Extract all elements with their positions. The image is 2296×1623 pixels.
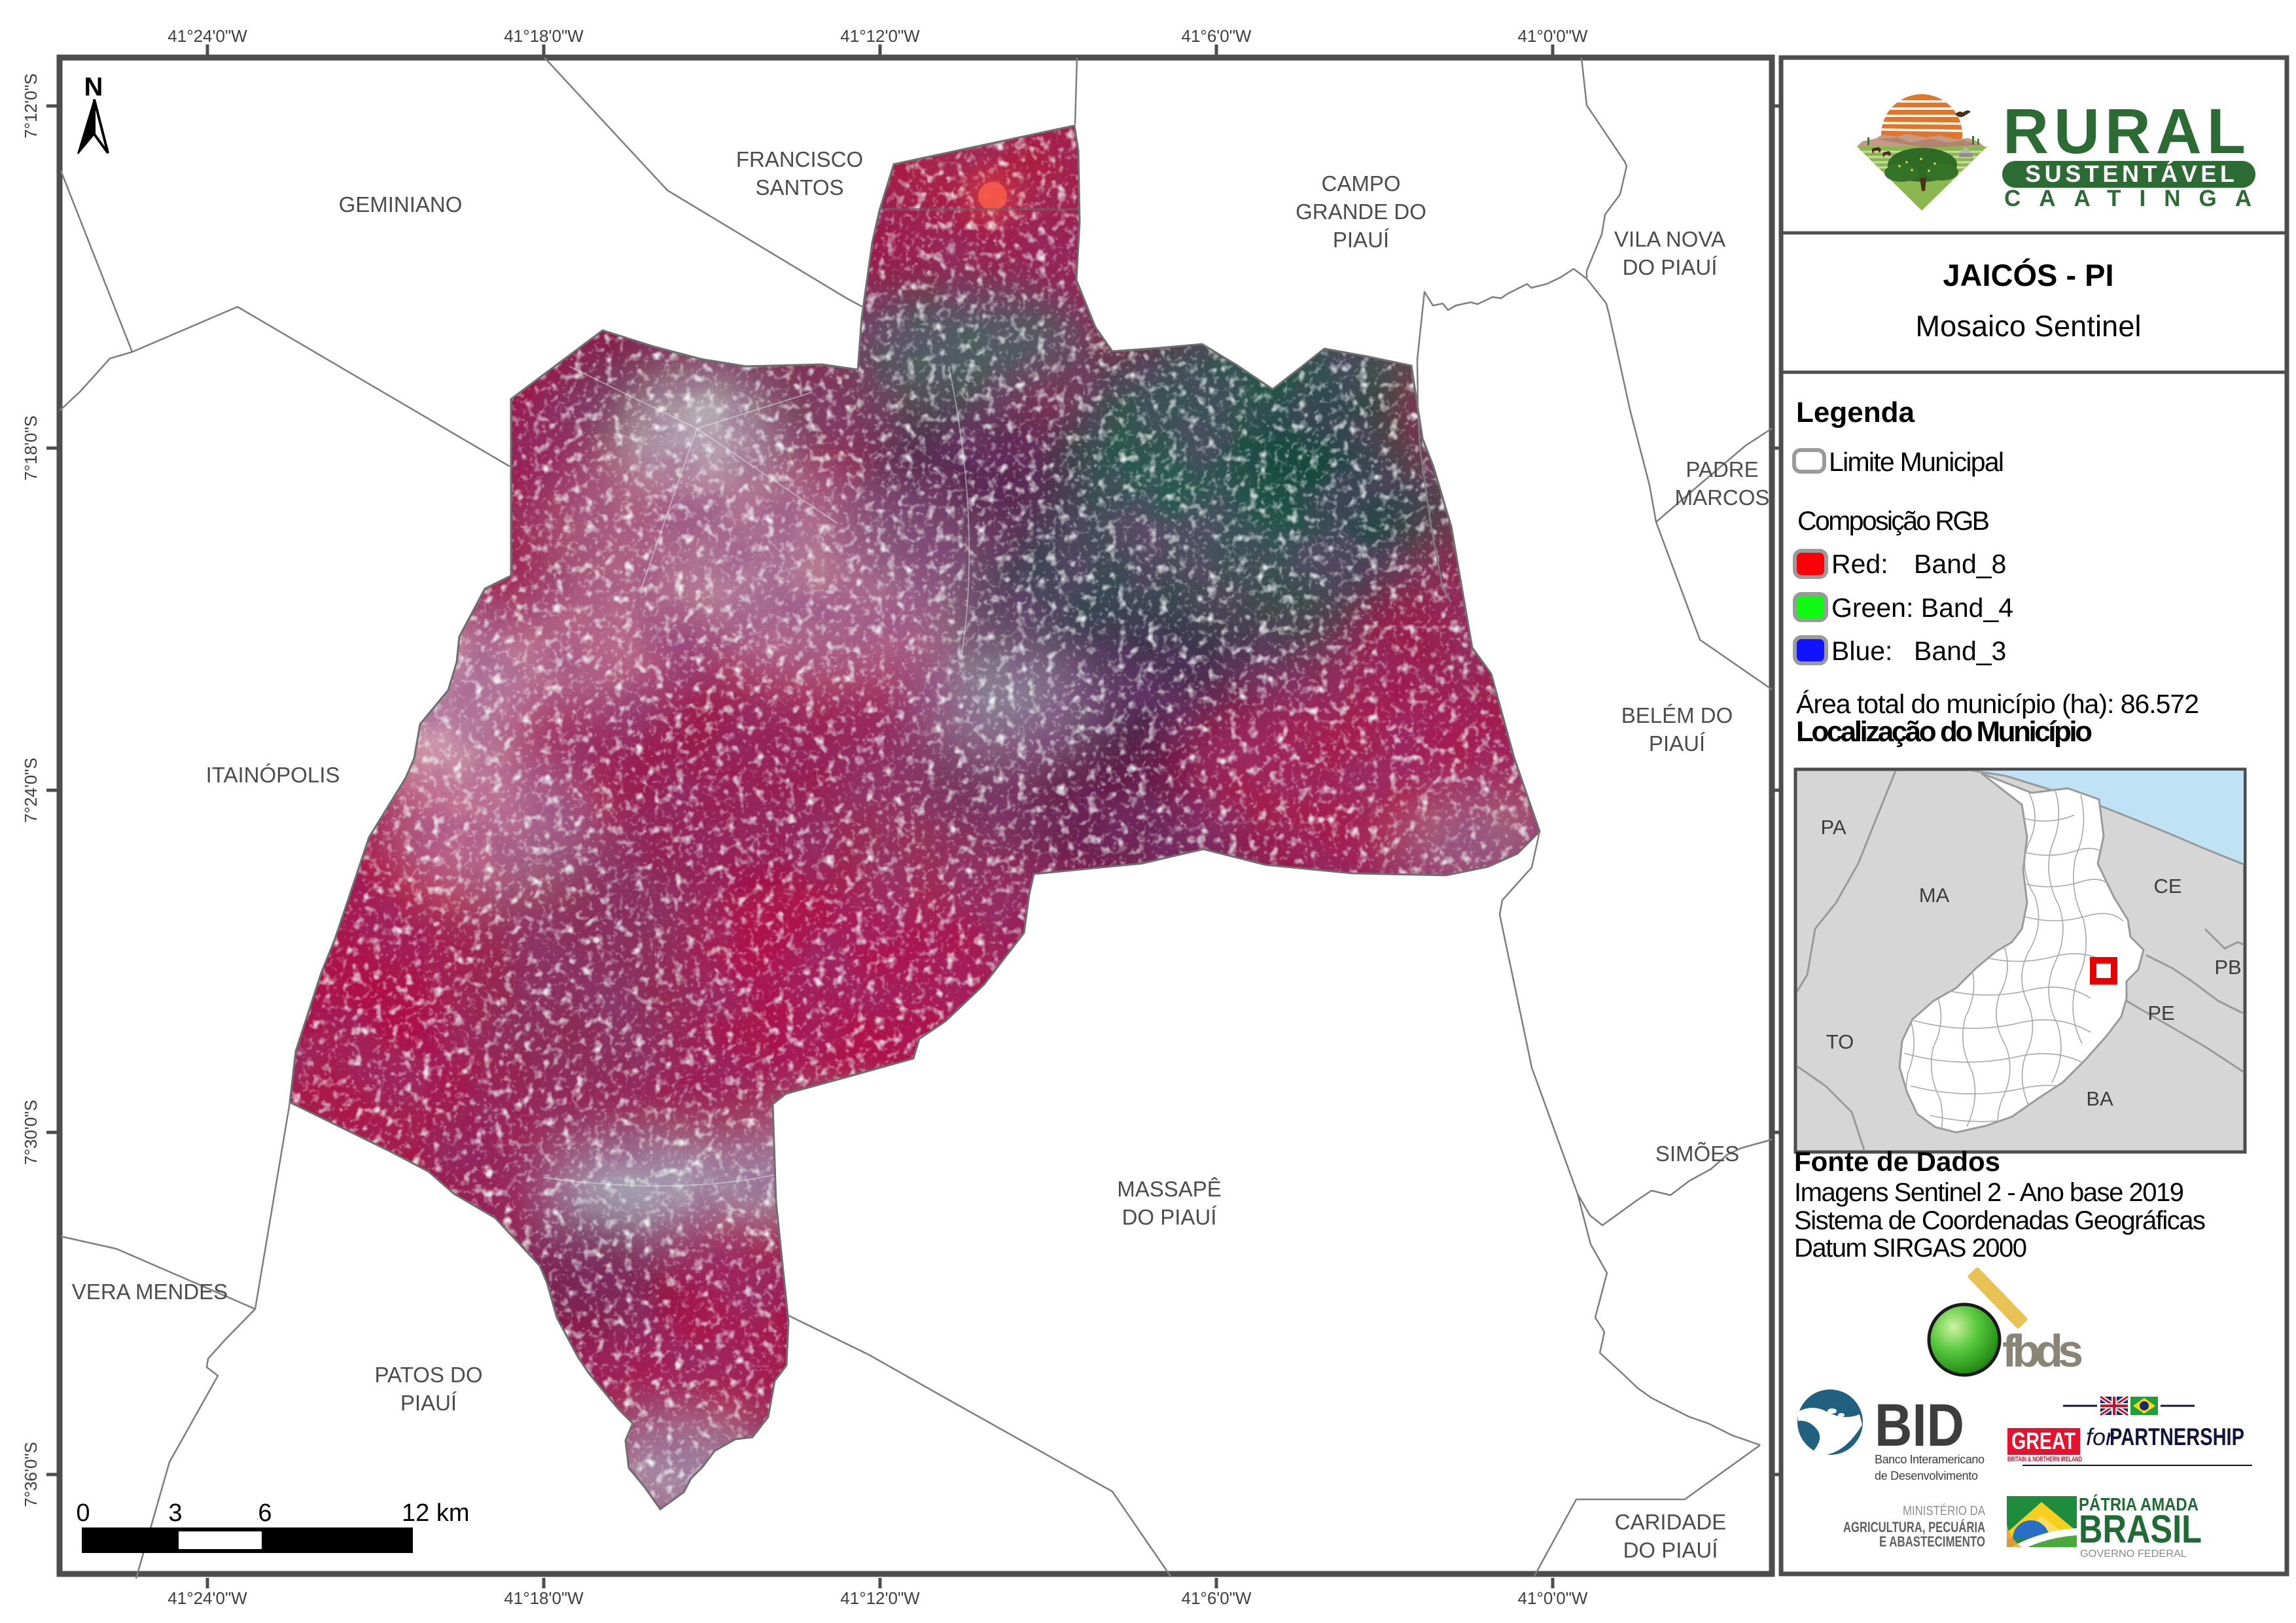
svg-text:Green: Band_4: Green: Band_4 xyxy=(1831,593,2013,623)
svg-text:BA: BA xyxy=(2086,1087,2113,1110)
svg-text:VILA NOVA: VILA NOVA xyxy=(1614,227,1725,251)
svg-text:VERA MENDES: VERA MENDES xyxy=(72,1280,228,1304)
svg-text:Red:: Red: xyxy=(1831,549,1888,579)
svg-text:41°24'0"W: 41°24'0"W xyxy=(168,1588,247,1608)
svg-text:7°18'0"S: 7°18'0"S xyxy=(21,415,41,481)
svg-text:PADRE: PADRE xyxy=(1686,457,1758,481)
svg-text:Composição RGB: Composição RGB xyxy=(1797,506,1990,536)
svg-text:Mosaico Sentinel: Mosaico Sentinel xyxy=(1916,309,2142,343)
svg-text:FRANCISCO: FRANCISCO xyxy=(736,147,863,171)
svg-text:PE: PE xyxy=(2147,1002,2174,1024)
svg-text:Limite Municipal: Limite Municipal xyxy=(1829,447,2004,477)
svg-text:Legenda: Legenda xyxy=(1796,396,1915,428)
svg-text:de Desenvolvimento: de Desenvolvimento xyxy=(1875,1469,1978,1482)
svg-text:GOVERNO FEDERAL: GOVERNO FEDERAL xyxy=(2080,1548,2187,1560)
svg-text:RURAL: RURAL xyxy=(2003,96,2246,167)
svg-text:PB: PB xyxy=(2214,956,2241,979)
svg-text:SUSTENTÁVEL: SUSTENTÁVEL xyxy=(2025,160,2234,187)
svg-text:BRITAIN & NORTHERN IRELAND: BRITAIN & NORTHERN IRELAND xyxy=(2007,1456,2082,1463)
svg-text:Fonte de Dados: Fonte de Dados xyxy=(1794,1146,2000,1177)
svg-text:BELÉM DO: BELÉM DO xyxy=(1621,703,1733,727)
svg-text:41°0'0"W: 41°0'0"W xyxy=(1518,26,1588,46)
svg-text:BRASIL: BRASIL xyxy=(2079,1507,2202,1551)
svg-text:Sistema de Coordenadas Geográf: Sistema de Coordenadas Geográficas xyxy=(1794,1206,2206,1235)
svg-text:CE: CE xyxy=(2153,875,2181,898)
svg-text:7°24'0"S: 7°24'0"S xyxy=(21,758,41,823)
svg-text:PA: PA xyxy=(1820,816,1846,839)
svg-text:Blue:: Blue: xyxy=(1831,636,1892,666)
svg-text:41°24'0"W: 41°24'0"W xyxy=(168,26,247,46)
svg-text:41°6'0"W: 41°6'0"W xyxy=(1182,1588,1252,1608)
svg-text:41°18'0"W: 41°18'0"W xyxy=(504,1588,584,1608)
svg-text:SANTOS: SANTOS xyxy=(755,175,843,200)
svg-text:MINISTÉRIO DA: MINISTÉRIO DA xyxy=(1903,1503,1986,1518)
svg-text:7°36'0"S: 7°36'0"S xyxy=(21,1442,41,1507)
svg-text:PIAUÍ: PIAUÍ xyxy=(400,1391,457,1415)
svg-text:Band_8: Band_8 xyxy=(1914,549,2006,579)
svg-text:Banco Interamericano: Banco Interamericano xyxy=(1875,1453,1985,1466)
svg-text:7°30'0"S: 7°30'0"S xyxy=(21,1100,41,1165)
svg-text:CARIDADE: CARIDADE xyxy=(1615,1510,1727,1534)
svg-text:41°18'0"W: 41°18'0"W xyxy=(504,26,584,46)
svg-text:6: 6 xyxy=(258,1499,272,1527)
svg-text:MARCOS: MARCOS xyxy=(1675,485,1770,510)
svg-text:DO PIAUÍ: DO PIAUÍ xyxy=(1122,1205,1218,1229)
svg-text:PIAUÍ: PIAUÍ xyxy=(1649,731,1706,756)
svg-text:TO: TO xyxy=(1826,1030,1854,1053)
svg-text:0: 0 xyxy=(76,1499,90,1527)
svg-text:Imagens Sentinel 2 - Ano base: Imagens Sentinel 2 - Ano base 2019 xyxy=(1794,1178,2184,1207)
svg-text:CAMPO: CAMPO xyxy=(1321,171,1400,196)
svg-text:BID: BID xyxy=(1875,1392,1964,1459)
svg-text:MASSAPÊ: MASSAPÊ xyxy=(1117,1177,1222,1201)
svg-text:Datum SIRGAS 2000: Datum SIRGAS 2000 xyxy=(1794,1234,2027,1263)
svg-text:PATOS DO: PATOS DO xyxy=(374,1363,482,1387)
svg-text:DO PIAUÍ: DO PIAUÍ xyxy=(1623,1538,1719,1562)
svg-text:Localização do Município: Localização do Município xyxy=(1796,716,2093,748)
svg-text:12 km: 12 km xyxy=(402,1499,469,1527)
svg-text:41°0'0"W: 41°0'0"W xyxy=(1518,1588,1588,1608)
svg-text:GRANDE DO: GRANDE DO xyxy=(1296,200,1426,224)
svg-text:PIAUÍ: PIAUÍ xyxy=(1333,228,1390,252)
svg-text:E ABASTECIMENTO: E ABASTECIMENTO xyxy=(1879,1533,1985,1550)
svg-text:41°12'0"W: 41°12'0"W xyxy=(840,26,920,46)
svg-text:fbds: fbds xyxy=(2002,1325,2083,1376)
svg-text:PARTNERSHIP: PARTNERSHIP xyxy=(2110,1423,2244,1450)
svg-text:Band_3: Band_3 xyxy=(1914,636,2006,666)
svg-text:DO PIAUÍ: DO PIAUÍ xyxy=(1623,255,1718,279)
svg-text:Área total do município (ha):: Área total do município (ha): 86.572 xyxy=(1796,689,2199,719)
svg-text:41°6'0"W: 41°6'0"W xyxy=(1182,26,1252,46)
svg-text:GREAT: GREAT xyxy=(2011,1427,2075,1454)
svg-text:7°12'0"S: 7°12'0"S xyxy=(21,73,41,139)
svg-text:MA: MA xyxy=(1919,884,1950,907)
svg-text:JAICÓS - PI: JAICÓS - PI xyxy=(1943,258,2113,292)
svg-text:N: N xyxy=(84,73,103,101)
svg-text:ITAINÓPOLIS: ITAINÓPOLIS xyxy=(206,763,340,787)
svg-text:41°12'0"W: 41°12'0"W xyxy=(840,1588,920,1608)
svg-text:SIMÕES: SIMÕES xyxy=(1655,1142,1739,1166)
svg-text:GEMINIANO: GEMINIANO xyxy=(339,192,463,217)
svg-text:3: 3 xyxy=(168,1499,182,1527)
